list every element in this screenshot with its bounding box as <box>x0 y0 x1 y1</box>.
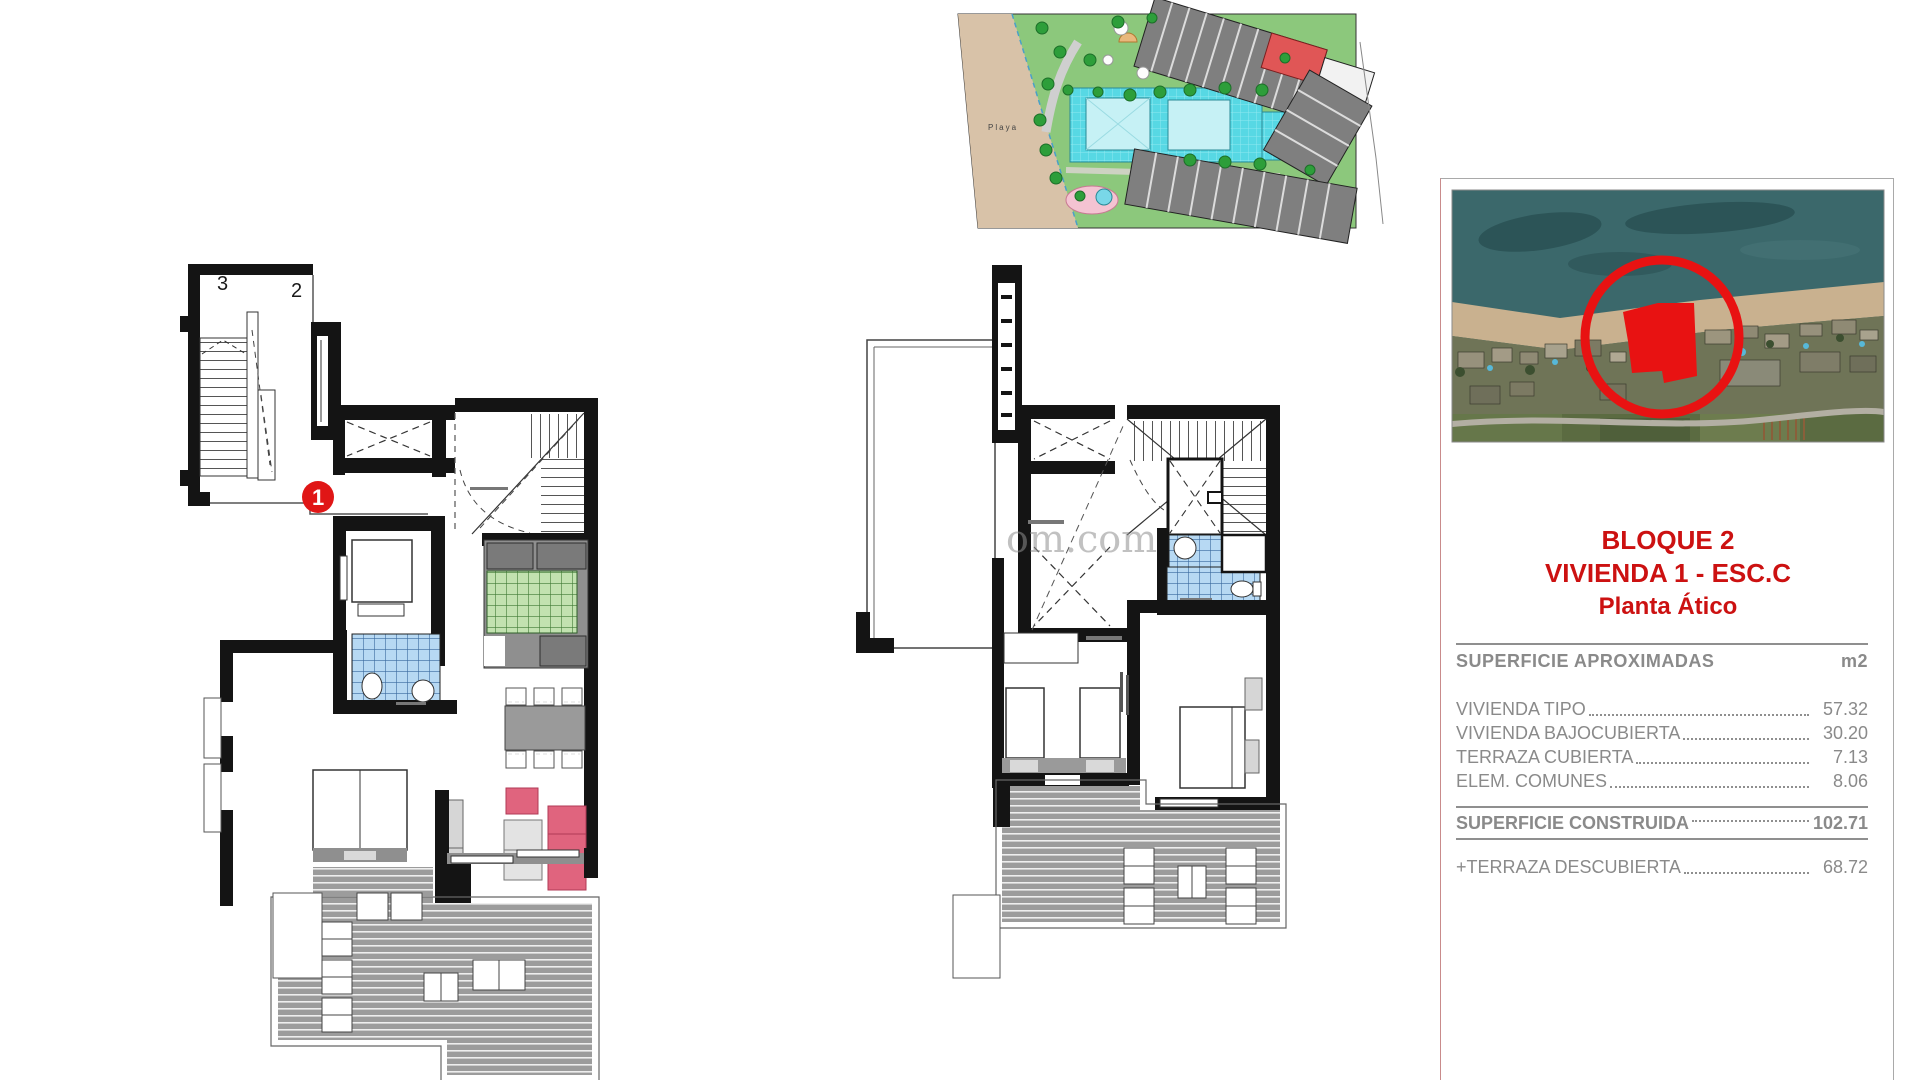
surface-table-header: SUPERFICIE APROXIMADAS <box>1456 651 1714 672</box>
sink <box>412 680 434 702</box>
watermark: om.com <box>1006 517 1157 561</box>
dot-leader <box>1589 714 1809 716</box>
staircase <box>200 312 275 480</box>
open-terrace-outline <box>867 340 995 648</box>
stair-label-2: 2 <box>291 280 302 302</box>
total-row: SUPERFICIE CONSTRUIDA 102.71 <box>1456 808 1868 838</box>
floor-title: Planta Ático <box>1452 590 1884 623</box>
dot-leader <box>1684 872 1809 874</box>
svg-text:1: 1 <box>312 485 324 510</box>
divider <box>1456 838 1868 840</box>
dwelling-title: VIVIENDA 1 - ESC.C <box>1452 557 1884 590</box>
left-floor-plan: 3 2 1 <box>180 264 599 1080</box>
dining-set <box>505 688 585 768</box>
playa-label: Playa <box>988 123 1018 132</box>
surface-table-unit: m2 <box>1841 651 1868 672</box>
bed <box>1002 688 1126 774</box>
leader-lines <box>1360 42 1383 224</box>
bed <box>340 540 412 616</box>
spa <box>1066 186 1118 214</box>
kitchen <box>482 533 588 668</box>
dot-leader <box>1683 738 1809 740</box>
center-floor-plan <box>856 265 1286 978</box>
block-title: BLOQUE 2 <box>1452 524 1884 557</box>
table-row: VIVIENDA TIPO 57.32 <box>1456 696 1868 720</box>
table-row: TERRAZA CUBIERTA 7.13 <box>1456 744 1868 768</box>
dot-leader <box>1636 762 1809 764</box>
table-row: VIVIENDA BAJOCUBIERTA 30.20 <box>1456 720 1868 744</box>
sofa-set <box>504 788 586 890</box>
toilet <box>1231 581 1253 597</box>
bed <box>313 770 407 862</box>
bed <box>1180 678 1262 788</box>
surface-table: SUPERFICIE APROXIMADAS m2 VIVIENDA TIPO … <box>1456 643 1868 878</box>
info-panel <box>1440 178 1894 1080</box>
dot-leader <box>1692 820 1809 822</box>
unit-number-badge: 1 <box>302 481 334 513</box>
site-plan: Playa <box>958 0 1383 243</box>
sink <box>1174 537 1196 559</box>
stair-label-3: 3 <box>217 273 228 295</box>
toilet <box>362 673 382 699</box>
floorplan-sheet: Playa 3 2 <box>0 0 1920 1080</box>
table-row: ELEM. COMUNES 8.06 <box>1456 768 1868 792</box>
dot-leader <box>1610 786 1809 788</box>
panel-title: BLOQUE 2 VIVIENDA 1 - ESC.C Planta Ático <box>1452 524 1884 623</box>
extra-row: +TERRAZA DESCUBIERTA 68.72 <box>1456 850 1868 878</box>
